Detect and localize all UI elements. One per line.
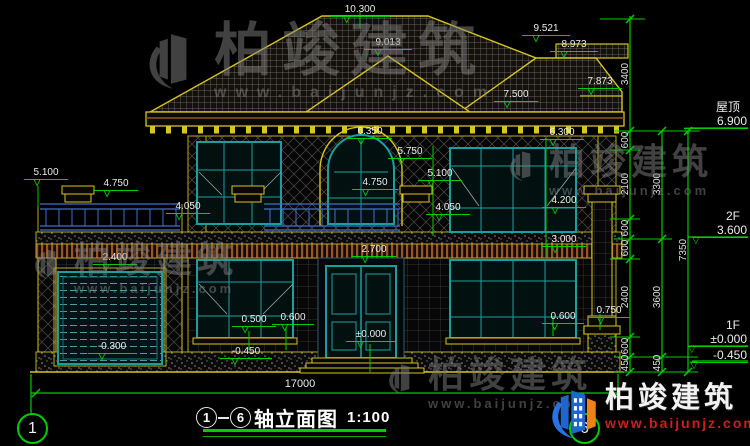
level-marker-icon: ▽ bbox=[388, 158, 432, 165]
dim-total-width: 17000 bbox=[270, 378, 330, 390]
elevation-mark: 6.350▽ bbox=[348, 127, 392, 145]
dim-vertical: 450 bbox=[621, 341, 631, 385]
level-marker-icon: ▽ bbox=[346, 341, 396, 348]
title-axis-end: 6 bbox=[230, 407, 251, 428]
brand-logo-icon bbox=[30, 242, 66, 286]
level-name: 1F bbox=[688, 318, 748, 332]
level-marker-icon: ▽ bbox=[542, 323, 584, 330]
level-marker-icon: ▽ bbox=[684, 128, 748, 136]
title-underline-thick bbox=[203, 429, 386, 432]
title-dash bbox=[218, 417, 229, 419]
elevation-mark: 8.973▽ bbox=[550, 40, 598, 58]
elevation-value: 4.050 bbox=[426, 203, 470, 214]
elevation-value: 9.521 bbox=[522, 24, 570, 35]
elevation-value: 4.750 bbox=[352, 178, 398, 189]
watermark-url: www.baijunjz.com bbox=[549, 183, 713, 198]
elevation-value: -0.450 bbox=[220, 347, 272, 358]
elevation-mark: 4.050▽ bbox=[426, 203, 470, 221]
level-marker-icon: ▽ bbox=[88, 353, 136, 360]
elevation-mark: 7.873▽ bbox=[578, 77, 622, 95]
elevation-mark: ±0.000▽ bbox=[346, 330, 396, 348]
level-marker-icon: ▽ bbox=[418, 180, 462, 187]
elevation-mark: 4.750▽ bbox=[352, 178, 398, 196]
watermark-top: 柏竣建筑 www.baijunjz.com bbox=[140, 22, 496, 102]
level-marker-icon: ▽ bbox=[94, 190, 138, 197]
dim-vertical: 3600 bbox=[653, 275, 663, 319]
level-marker-icon: ▽ bbox=[426, 214, 470, 221]
level-2f: 2F 3.600 ▽ bbox=[692, 209, 748, 245]
dim-vertical: 600 bbox=[621, 226, 631, 270]
level-marker-icon: ▽ bbox=[692, 237, 748, 245]
elevation-value: 0.500 bbox=[232, 315, 276, 326]
brand-logo-corner: 柏竣建筑 www.baijunjz.com bbox=[545, 383, 750, 445]
cad-elevation-sheet: 10.300▽ 9.013▽ 9.521▽ 8.973▽ 7.873▽ 7.50… bbox=[0, 0, 750, 446]
level-name: 2F bbox=[692, 209, 748, 223]
elevation-value: 4.050 bbox=[166, 202, 210, 213]
elevation-value: 8.973 bbox=[550, 40, 598, 51]
level-marker-icon: ▽ bbox=[24, 179, 68, 186]
elevation-value: 2.700 bbox=[352, 245, 396, 256]
watermark-right: 柏竣建筑 www.baijunjz.com bbox=[505, 144, 713, 198]
level-roof: 屋顶 6.900 ▽ bbox=[684, 100, 748, 136]
elevation-mark: 4.200▽ bbox=[542, 196, 586, 214]
elevation-value: ±0.000 bbox=[346, 330, 396, 341]
elevation-value: 10.300 bbox=[330, 5, 390, 16]
elevation-mark: 2.700▽ bbox=[352, 245, 396, 263]
brand-name: 柏竣建筑 bbox=[605, 383, 750, 415]
watermark-url: www.baijunjz.com bbox=[74, 281, 238, 296]
elevation-value: 5.750 bbox=[388, 147, 432, 158]
elevation-mark: 5.100▽ bbox=[24, 168, 68, 186]
elevation-value: 3.000 bbox=[542, 235, 586, 246]
watermark-brand: 柏竣建筑 bbox=[549, 144, 713, 180]
level-marker-icon: ▽ bbox=[232, 326, 276, 333]
elevation-value: 0.600 bbox=[272, 313, 314, 324]
elevation-mark: 0.600▽ bbox=[542, 312, 584, 330]
dim-vertical: 3400 bbox=[621, 52, 631, 96]
brand-logo-icon bbox=[545, 383, 601, 445]
brand-logo-icon bbox=[384, 357, 420, 401]
watermark-brand: 柏竣建筑 bbox=[74, 242, 238, 278]
watermark-url: www.baijunjz.com bbox=[214, 84, 496, 102]
watermark-brand: 柏竣建筑 bbox=[214, 22, 496, 80]
elevation-value: 4.750 bbox=[94, 179, 138, 190]
dim-vertical: 2400 bbox=[621, 275, 631, 319]
brand-logo-icon bbox=[505, 144, 541, 188]
level-name: 屋顶 bbox=[684, 100, 748, 114]
elevation-mark: 0.600▽ bbox=[272, 313, 314, 331]
level-value: 3.600 bbox=[692, 223, 748, 237]
dim-vertical: 7350 bbox=[679, 228, 689, 272]
elevation-value: 6.350 bbox=[348, 127, 392, 138]
level-marker-icon: ▽ bbox=[352, 256, 396, 263]
elevation-mark: 5.750▽ bbox=[388, 147, 432, 165]
elevation-value: 6.300 bbox=[540, 128, 584, 139]
elevation-mark: -0.300▽ bbox=[88, 342, 136, 360]
drawing-title: 1 6 轴立面图 1:100 bbox=[196, 403, 390, 432]
level-marker-icon: ▽ bbox=[578, 88, 622, 95]
elevation-value: 5.100 bbox=[24, 168, 68, 179]
level-marker-icon: ▽ bbox=[494, 101, 538, 108]
level-marker-icon: ▽ bbox=[220, 358, 272, 365]
level-ground: -0.450 ▽ bbox=[690, 348, 748, 370]
brand-url: www.baijunjz.com bbox=[605, 415, 750, 431]
level-marker-icon: ▽ bbox=[272, 324, 314, 331]
elevation-value: 7.500 bbox=[494, 90, 538, 101]
level-marker-icon: ▽ bbox=[542, 246, 586, 253]
level-value: -0.450 bbox=[690, 348, 748, 362]
level-marker-icon: ▽ bbox=[348, 138, 392, 145]
elevation-mark: 7.500▽ bbox=[494, 90, 538, 108]
brand-logo-icon bbox=[140, 22, 206, 100]
elevation-mark: 5.100▽ bbox=[418, 169, 462, 187]
title-underline-thin bbox=[203, 436, 386, 437]
elevation-mark: 3.000▽ bbox=[542, 235, 586, 253]
level-value: ±0.000 bbox=[688, 332, 748, 346]
title-text: 轴立面图 bbox=[254, 403, 338, 432]
elevation-value: 0.600 bbox=[542, 312, 584, 323]
level-marker-icon: ▽ bbox=[352, 189, 398, 196]
axis-bubble-1: 1 bbox=[17, 413, 48, 444]
elevation-mark: 4.750▽ bbox=[94, 179, 138, 197]
elevation-value: -0.300 bbox=[88, 342, 136, 353]
title-scale: 1:100 bbox=[347, 409, 390, 426]
elevation-mark: -0.450▽ bbox=[220, 347, 272, 365]
watermark-left: 柏竣建筑 www.baijunjz.com bbox=[30, 242, 238, 296]
level-value: 6.900 bbox=[684, 114, 748, 128]
elevation-value: 7.873 bbox=[578, 77, 622, 88]
elevation-value: 5.100 bbox=[418, 169, 462, 180]
level-marker-icon: ▽ bbox=[542, 207, 586, 214]
elevation-mark: 4.050▽ bbox=[166, 202, 210, 220]
title-axis-start: 1 bbox=[196, 407, 217, 428]
level-marker-icon: ▽ bbox=[690, 362, 748, 370]
level-marker-icon: ▽ bbox=[166, 213, 210, 220]
dim-vertical: 450 bbox=[653, 341, 663, 385]
level-marker-icon: ▽ bbox=[550, 51, 598, 58]
elevation-mark: 0.500▽ bbox=[232, 315, 276, 333]
